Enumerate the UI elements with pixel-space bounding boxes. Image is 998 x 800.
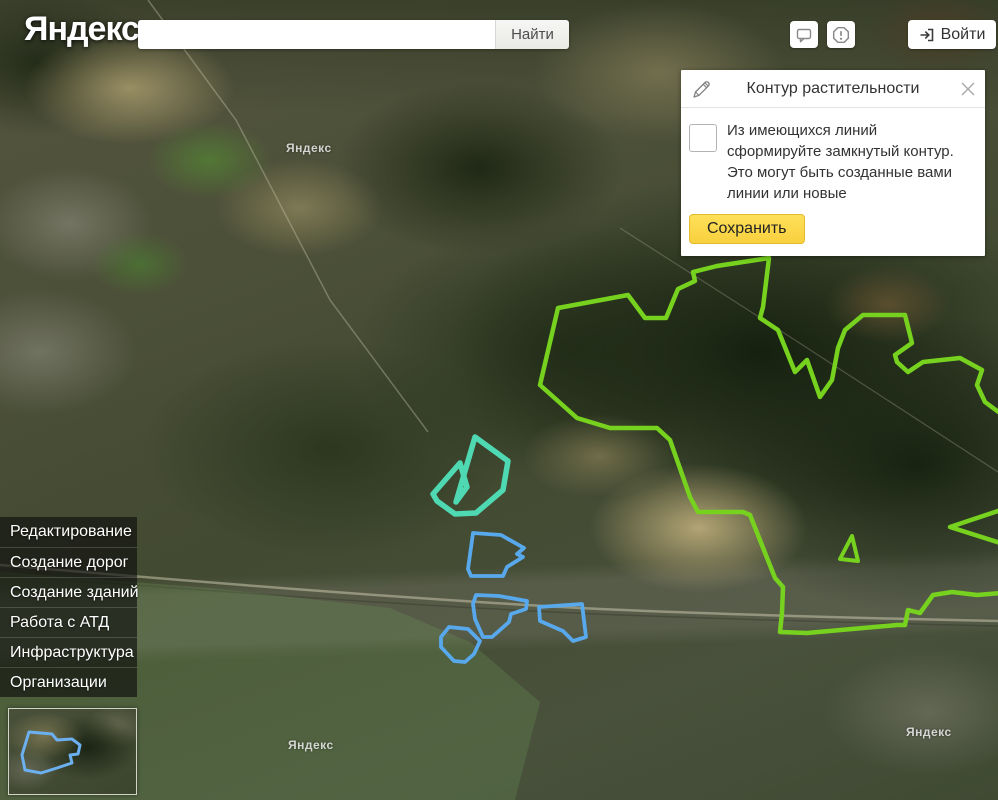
login-icon (919, 27, 935, 43)
menu-item-editing[interactable]: Редактирование (0, 517, 137, 547)
road-line (620, 228, 998, 472)
yandex-logo[interactable]: Яндекс (24, 10, 139, 49)
road-line (148, 0, 428, 432)
water-contour-polygon[interactable] (468, 533, 524, 576)
search-input[interactable] (138, 20, 495, 49)
login-button[interactable]: Войти (908, 20, 996, 49)
close-icon[interactable] (961, 82, 975, 96)
minimap-contour (22, 732, 80, 773)
menu-item-infrastructure[interactable]: Инфраструктура (0, 637, 137, 667)
vegetation-contour-hole[interactable] (840, 536, 858, 561)
chat-icon (795, 26, 813, 44)
search-button[interactable]: Найти (495, 20, 569, 49)
panel-title: Контур растительности (681, 80, 985, 98)
water-contour-polygon[interactable] (539, 604, 586, 641)
menu-item-atd[interactable]: Работа с АТД (0, 607, 137, 637)
panel-description: Из имеющихся линий сформируйте замкнутый… (727, 120, 973, 204)
active-contour-polygon[interactable] (433, 437, 508, 514)
menu-item-roads[interactable]: Создание дорог (0, 547, 137, 577)
map-watermark: Яндекс (906, 725, 952, 739)
panel-header: Контур растительности (681, 70, 985, 108)
minimap-overlay (9, 709, 138, 796)
map-watermark: Яндекс (288, 738, 334, 752)
pencil-icon (691, 78, 713, 100)
login-label: Войти (941, 26, 986, 44)
search-bar: Найти (138, 20, 569, 49)
warning-icon (832, 26, 850, 44)
map-editor-window: Яндекс Яндекс Яндекс Яндекс Найти Войти (0, 0, 998, 800)
vegetation-contour-polygon[interactable] (540, 258, 998, 633)
contour-checkbox[interactable] (689, 124, 717, 152)
panel-body: Из имеющихся линий сформируйте замкнутый… (681, 108, 985, 256)
notifications-button[interactable] (827, 21, 855, 48)
edit-menu: Редактирование Создание дорог Создание з… (0, 517, 137, 697)
menu-item-buildings[interactable]: Создание зданий (0, 577, 137, 607)
feedback-button[interactable] (790, 21, 818, 48)
vegetation-contour-panel: Контур растительности Из имеющихся линий… (681, 70, 985, 256)
map-watermark: Яндекс (286, 141, 332, 155)
menu-item-organizations[interactable]: Организации (0, 667, 137, 697)
save-button[interactable]: Сохранить (689, 214, 805, 244)
minimap[interactable] (8, 708, 137, 795)
